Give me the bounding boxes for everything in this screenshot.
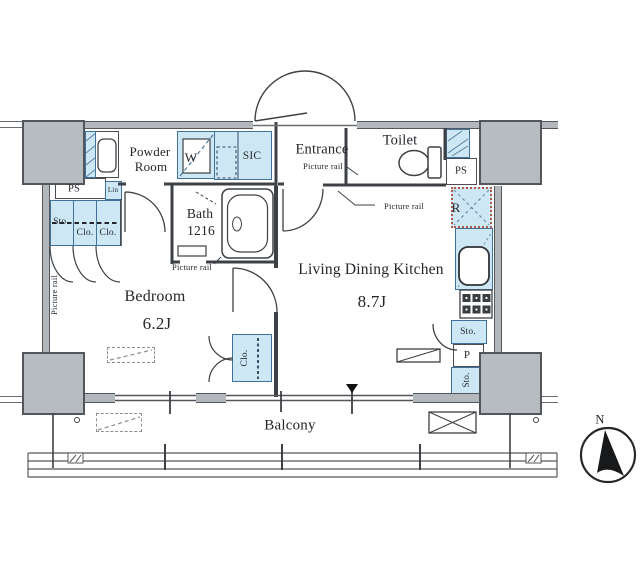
ldk-size-label: 8.7J: [358, 292, 387, 312]
bedroom-door-arc: [233, 268, 277, 312]
plan-linework: [0, 0, 640, 569]
linen-label: Lin: [108, 186, 118, 194]
fridge-label: R: [452, 200, 461, 216]
kitchen-storage-label-a: Sto.: [460, 327, 476, 337]
picture-rail-label-bedroom: Picture rail: [49, 275, 59, 315]
furniture-diagonals: [98, 350, 152, 430]
toilet-bowl: [399, 151, 429, 176]
ldk-label: Living Dining Kitchen: [298, 261, 443, 279]
bath-door-step: [178, 246, 206, 256]
bathtub: [222, 189, 273, 258]
wall-segment: [118, 184, 446, 185]
powder-room-label-line1: Powder: [130, 144, 171, 160]
kitchen-door-arc: [433, 324, 457, 350]
entrance-door-leaf: [255, 113, 307, 121]
bedroom-closet-label: Clo.: [240, 350, 250, 367]
balcony-access-marker: [346, 384, 358, 393]
hall-closet-door-arcs: [50, 246, 120, 282]
hall-storage-label: Sto.: [53, 217, 69, 227]
bedroom-size-label: 6.2J: [143, 314, 172, 334]
window-ticks: [170, 391, 352, 414]
bath-label: Bath: [187, 206, 213, 222]
bath-size-label: 1216: [187, 223, 215, 239]
powder-room-label-line2: Room: [135, 159, 168, 175]
balcony-label: Balcony: [264, 418, 315, 435]
washer-label: W: [185, 150, 197, 166]
powder-door-arc: [125, 192, 165, 232]
kitchen-sink: [459, 247, 489, 285]
entrance-label: Entrance: [295, 142, 348, 159]
vanity-sink: [98, 139, 116, 172]
shower-dash: [196, 192, 216, 204]
hall-ldk-door-arc: [283, 189, 323, 231]
picture-rail-label-bath: Picture rail: [172, 262, 212, 272]
sic-inner-dashed: [217, 147, 236, 178]
balcony-dot-left: [75, 418, 80, 423]
ps-left-label: PS: [68, 184, 80, 195]
window-lines: [115, 396, 413, 401]
toilet-cabinet-hatch: [448, 131, 468, 156]
vanity-hatch: [86, 133, 96, 177]
floor-plan: Powder Room W SIC Entrance Toilet Pictur…: [0, 0, 640, 569]
shoe-closet-label: SIC: [243, 150, 262, 162]
bedroom-label: Bedroom: [125, 288, 186, 306]
hall-closet-label-b: Clo.: [100, 228, 117, 238]
balcony-railing: [28, 453, 557, 477]
balcony-railing-ticks: [165, 444, 420, 470]
hall-closet-label-a: Clo.: [77, 228, 94, 238]
ps-right-label: PS: [455, 166, 467, 177]
toilet-label: Toilet: [383, 133, 418, 150]
picture-rail-label-entrance: Picture rail: [303, 161, 343, 171]
compass-north-label: N: [595, 413, 604, 428]
toilet-tank: [428, 147, 441, 178]
picture-rail-label-ldk: Picture rail: [384, 201, 424, 211]
kitchen-storage-label-b: Sto.: [461, 372, 471, 387]
balcony-dot-right: [534, 418, 539, 423]
bedroom-closet-door-arcs: [209, 336, 233, 382]
kitchen-pantry-label: P: [464, 349, 470, 361]
